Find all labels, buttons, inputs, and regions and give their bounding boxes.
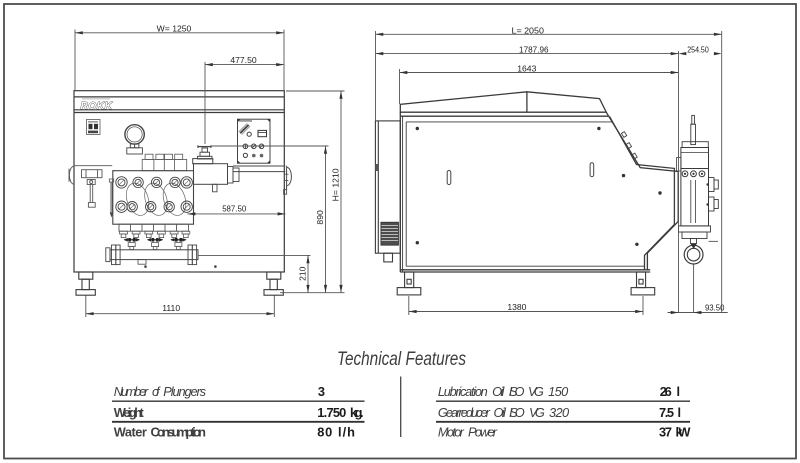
- svg-text:254.50: 254.50: [687, 45, 709, 55]
- svg-text:Technical Features: Technical Features: [337, 349, 466, 370]
- svg-text:W= 1250: W= 1250: [157, 23, 192, 33]
- svg-text:kW: kW: [676, 425, 692, 440]
- svg-text:VG: VG: [528, 384, 544, 399]
- svg-text:26: 26: [660, 384, 672, 399]
- svg-text:Lubrication: Lubrication: [438, 384, 488, 399]
- svg-text:H= 1210: H= 1210: [331, 168, 341, 201]
- svg-text:37: 37: [659, 425, 672, 440]
- svg-text:1787.96: 1787.96: [519, 45, 549, 55]
- svg-text:kg.: kg.: [350, 405, 364, 420]
- svg-text:Water: Water: [114, 425, 147, 440]
- svg-text:Plungers: Plungers: [163, 384, 206, 399]
- svg-text:Consumption: Consumption: [151, 425, 207, 440]
- svg-text:VG: VG: [529, 405, 545, 420]
- svg-text:890: 890: [315, 210, 325, 225]
- svg-text:ROKK: ROKK: [81, 101, 113, 112]
- svg-text:Gearreducer: Gearreducer: [438, 405, 491, 420]
- svg-text:210: 210: [298, 266, 308, 281]
- svg-text:Motor: Motor: [438, 425, 465, 440]
- svg-text:1380: 1380: [507, 302, 526, 312]
- svg-text:1643: 1643: [517, 63, 536, 73]
- svg-text:Number: Number: [114, 384, 149, 399]
- svg-text:7.5: 7.5: [659, 405, 674, 420]
- svg-text:150: 150: [548, 384, 569, 399]
- svg-text:477.50: 477.50: [230, 55, 257, 65]
- svg-text:Oil: Oil: [494, 405, 507, 420]
- svg-text:ISO: ISO: [509, 405, 525, 420]
- svg-text:1.750: 1.750: [317, 405, 346, 420]
- svg-text:93.50: 93.50: [705, 302, 725, 312]
- svg-text:1110: 1110: [162, 303, 180, 313]
- svg-text:l/h: l/h: [338, 425, 355, 440]
- svg-text:l: l: [677, 384, 681, 399]
- svg-text:Weight: Weight: [114, 405, 145, 420]
- svg-text:320: 320: [549, 405, 570, 420]
- svg-text:l: l: [678, 405, 682, 420]
- svg-text:587.50: 587.50: [222, 203, 246, 213]
- svg-text:Power: Power: [468, 425, 498, 440]
- svg-text:L= 2050: L= 2050: [512, 25, 545, 35]
- svg-text:Oil: Oil: [492, 384, 505, 399]
- svg-text:3: 3: [318, 384, 325, 399]
- svg-text:ISO: ISO: [509, 384, 525, 399]
- svg-text:80: 80: [317, 425, 332, 440]
